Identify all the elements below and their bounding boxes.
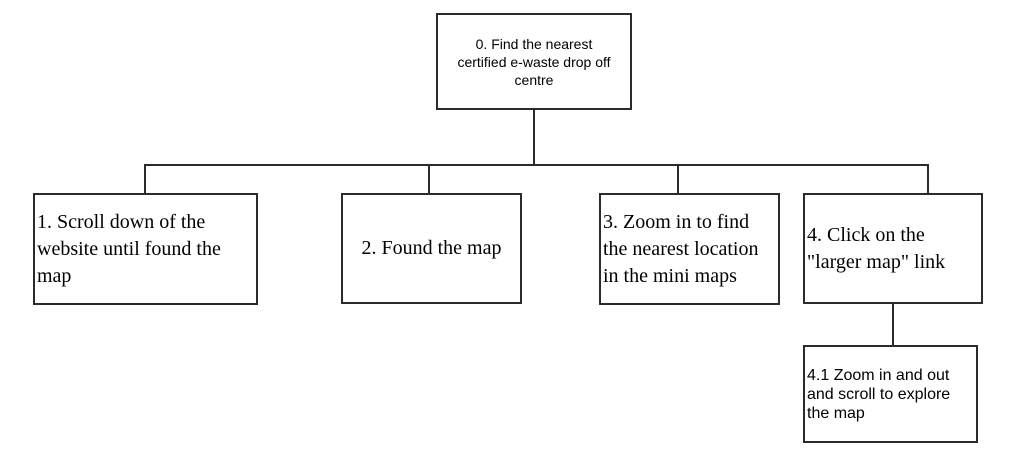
node-root-label: 0. Find the nearest certified e-waste dr… bbox=[438, 35, 630, 89]
flowchart-node-step4-1: 4.1 Zoom in and out and scroll to explor… bbox=[803, 345, 978, 443]
connector-horizontal-bar bbox=[144, 164, 929, 166]
node-step2-label: 2. Found the map bbox=[343, 235, 520, 262]
connector-root-stem bbox=[533, 110, 535, 166]
flowchart-node-root: 0. Find the nearest certified e-waste dr… bbox=[436, 13, 632, 110]
node-step4-1-label: 4.1 Zoom in and out and scroll to explor… bbox=[807, 366, 973, 423]
flowchart-node-step2: 2. Found the map bbox=[341, 193, 522, 304]
flowchart-node-step1: 1. Scroll down of the website until foun… bbox=[33, 193, 258, 305]
connector-step4-to-step4-1 bbox=[892, 303, 894, 346]
connector-drop-step1 bbox=[144, 164, 146, 194]
connector-drop-step2 bbox=[428, 164, 430, 194]
connector-drop-step4 bbox=[927, 164, 929, 194]
node-step4-label: 4. Click on the "larger map" link bbox=[807, 222, 978, 276]
node-step3-label: 3. Zoom in to find the nearest location … bbox=[603, 209, 775, 290]
node-step1-label: 1. Scroll down of the website until foun… bbox=[37, 209, 253, 290]
flowchart-node-step4: 4. Click on the "larger map" link bbox=[803, 193, 983, 304]
connector-drop-step3 bbox=[677, 164, 679, 194]
flowchart-node-step3: 3. Zoom in to find the nearest location … bbox=[599, 193, 780, 305]
flowchart-canvas: 0. Find the nearest certified e-waste dr… bbox=[0, 0, 1024, 464]
